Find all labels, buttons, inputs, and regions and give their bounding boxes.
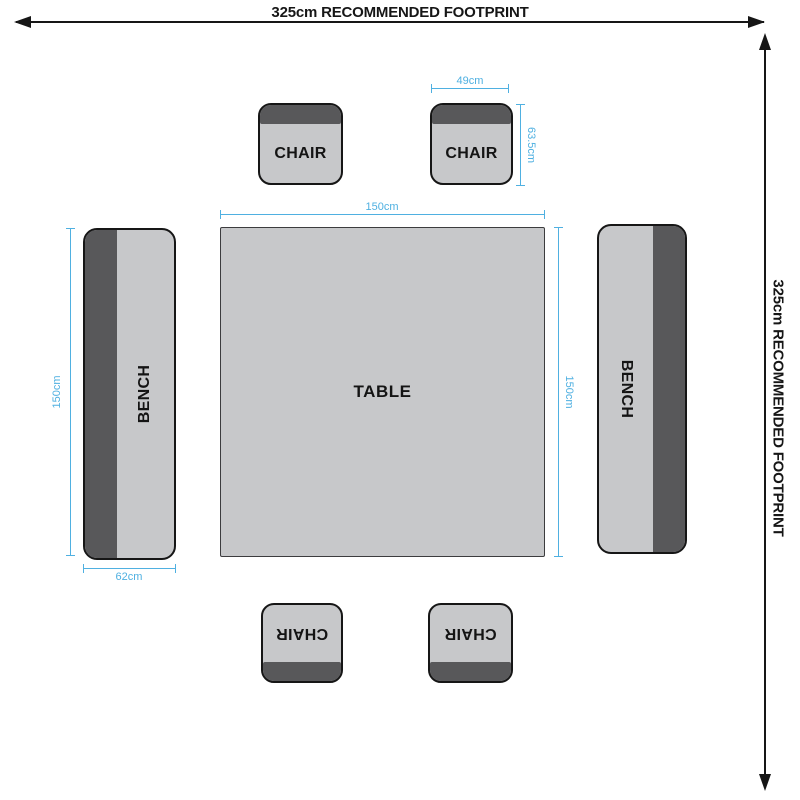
bench-label: BENCH: [137, 365, 155, 423]
chair-top-left: CHAIR: [258, 103, 343, 185]
footprint-diagram: 325cm RECOMMENDED FOOTPRINT 325cm RECOMM…: [0, 0, 800, 800]
chair-top-right: CHAIR: [430, 103, 513, 185]
bench-right: BENCH: [597, 224, 687, 554]
dimension-line: [520, 104, 521, 186]
top-footprint-label: 325cm RECOMMENDED FOOTPRINT: [271, 4, 528, 21]
dimension-tick: [175, 564, 176, 573]
bench-width-value: 62cm: [116, 571, 143, 583]
chair-label-area: CHAIR: [263, 605, 341, 662]
bench-left: BENCH: [83, 228, 176, 560]
dimension-tick: [516, 185, 525, 186]
dimension-line: [83, 568, 176, 569]
right-footprint-arrow-line: [764, 36, 766, 788]
chair-label: CHAIR: [276, 625, 328, 643]
chair-label-area: CHAIR: [430, 605, 511, 662]
dimension-tick: [431, 84, 432, 93]
dimension-tick: [66, 228, 75, 229]
arrowhead-right-icon: [748, 16, 765, 28]
table: TABLE: [220, 227, 545, 557]
dimension-line: [220, 214, 545, 215]
chair-label-area: CHAIR: [432, 124, 511, 183]
top-footprint-arrow-line: [16, 21, 764, 23]
table-depth-value: 150cm: [563, 375, 575, 408]
right-footprint-label: 325cm RECOMMENDED FOOTPRINT: [770, 279, 787, 536]
dimension-tick: [83, 564, 84, 573]
chair-label-area: CHAIR: [260, 124, 341, 183]
bench-label-area: BENCH: [117, 230, 174, 558]
bench-label-area: BENCH: [599, 226, 653, 552]
table-width-value: 150cm: [365, 201, 398, 213]
chair-label: CHAIR: [445, 145, 497, 163]
chair-backrest: [260, 105, 341, 124]
chair-label: CHAIR: [444, 625, 496, 643]
bench-backrest: [85, 230, 117, 558]
arrowhead-down-icon: [759, 774, 771, 791]
chair-backrest: [432, 105, 511, 124]
dimension-tick: [554, 556, 563, 557]
table-label: TABLE: [354, 382, 412, 402]
dimension-tick: [554, 227, 563, 228]
bench-backrest: [653, 226, 685, 552]
chair-label: CHAIR: [274, 145, 326, 163]
chair-backrest: [430, 662, 511, 681]
dimension-tick: [66, 555, 75, 556]
bench-label: BENCH: [617, 360, 635, 418]
bench-length-value: 150cm: [51, 375, 63, 408]
dimension-tick: [220, 210, 221, 219]
dimension-line: [558, 227, 559, 557]
dimension-line: [70, 228, 71, 556]
chair-backrest: [263, 662, 341, 681]
dimension-line: [431, 88, 509, 89]
chair-depth-value: 63.5cm: [525, 127, 537, 163]
chair-bottom-right: CHAIR: [428, 603, 513, 683]
arrowhead-up-icon: [759, 33, 771, 50]
dimension-tick: [508, 84, 509, 93]
chair-width-value: 49cm: [457, 75, 484, 87]
arrowhead-left-icon: [14, 16, 31, 28]
chair-bottom-left: CHAIR: [261, 603, 343, 683]
dimension-tick: [544, 210, 545, 219]
dimension-tick: [516, 104, 525, 105]
